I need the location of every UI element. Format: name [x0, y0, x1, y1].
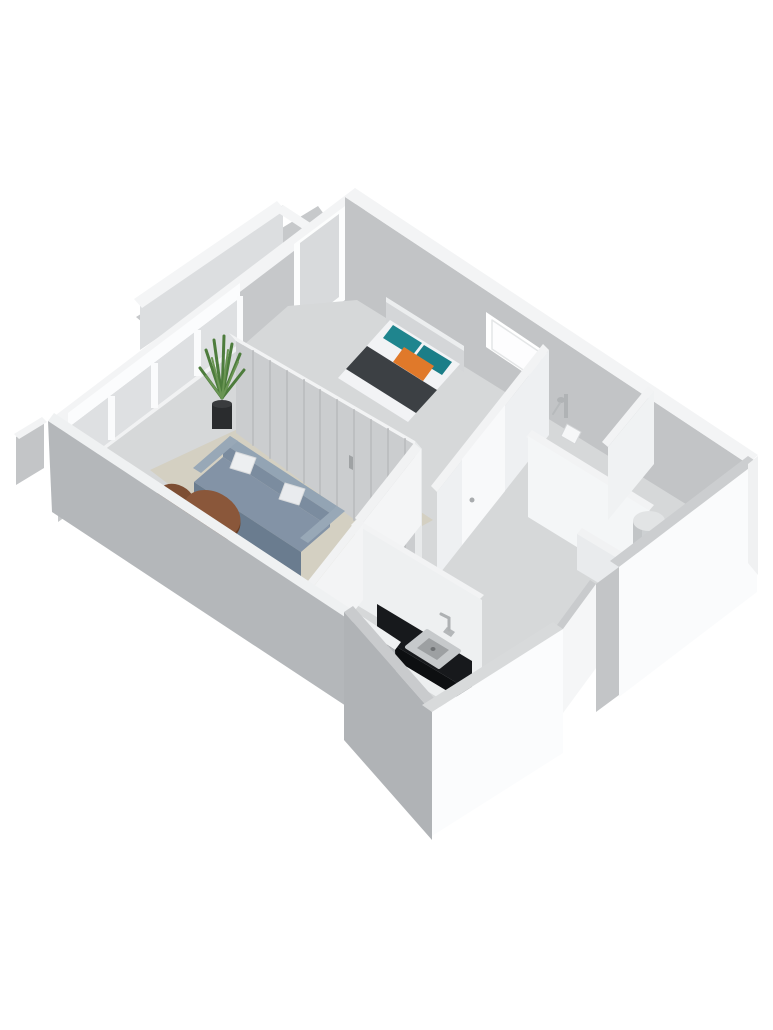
- living-window-post-1: [237, 296, 243, 345]
- right-corner-cap: [748, 456, 758, 575]
- utility-left-sliver: [596, 567, 619, 712]
- closet-door-handle: [349, 455, 353, 470]
- living-window-post-4: [108, 396, 115, 440]
- kitchen-sink-drain: [431, 647, 436, 651]
- living-window-post-3: [151, 363, 158, 408]
- bathroom-door-handle: [470, 498, 475, 503]
- plant-pot-top: [212, 400, 232, 408]
- shower-bar: [564, 394, 568, 418]
- floorplan-3d-render: [0, 0, 773, 1030]
- floorplan-svg: [0, 0, 773, 1030]
- shower-head: [557, 397, 565, 403]
